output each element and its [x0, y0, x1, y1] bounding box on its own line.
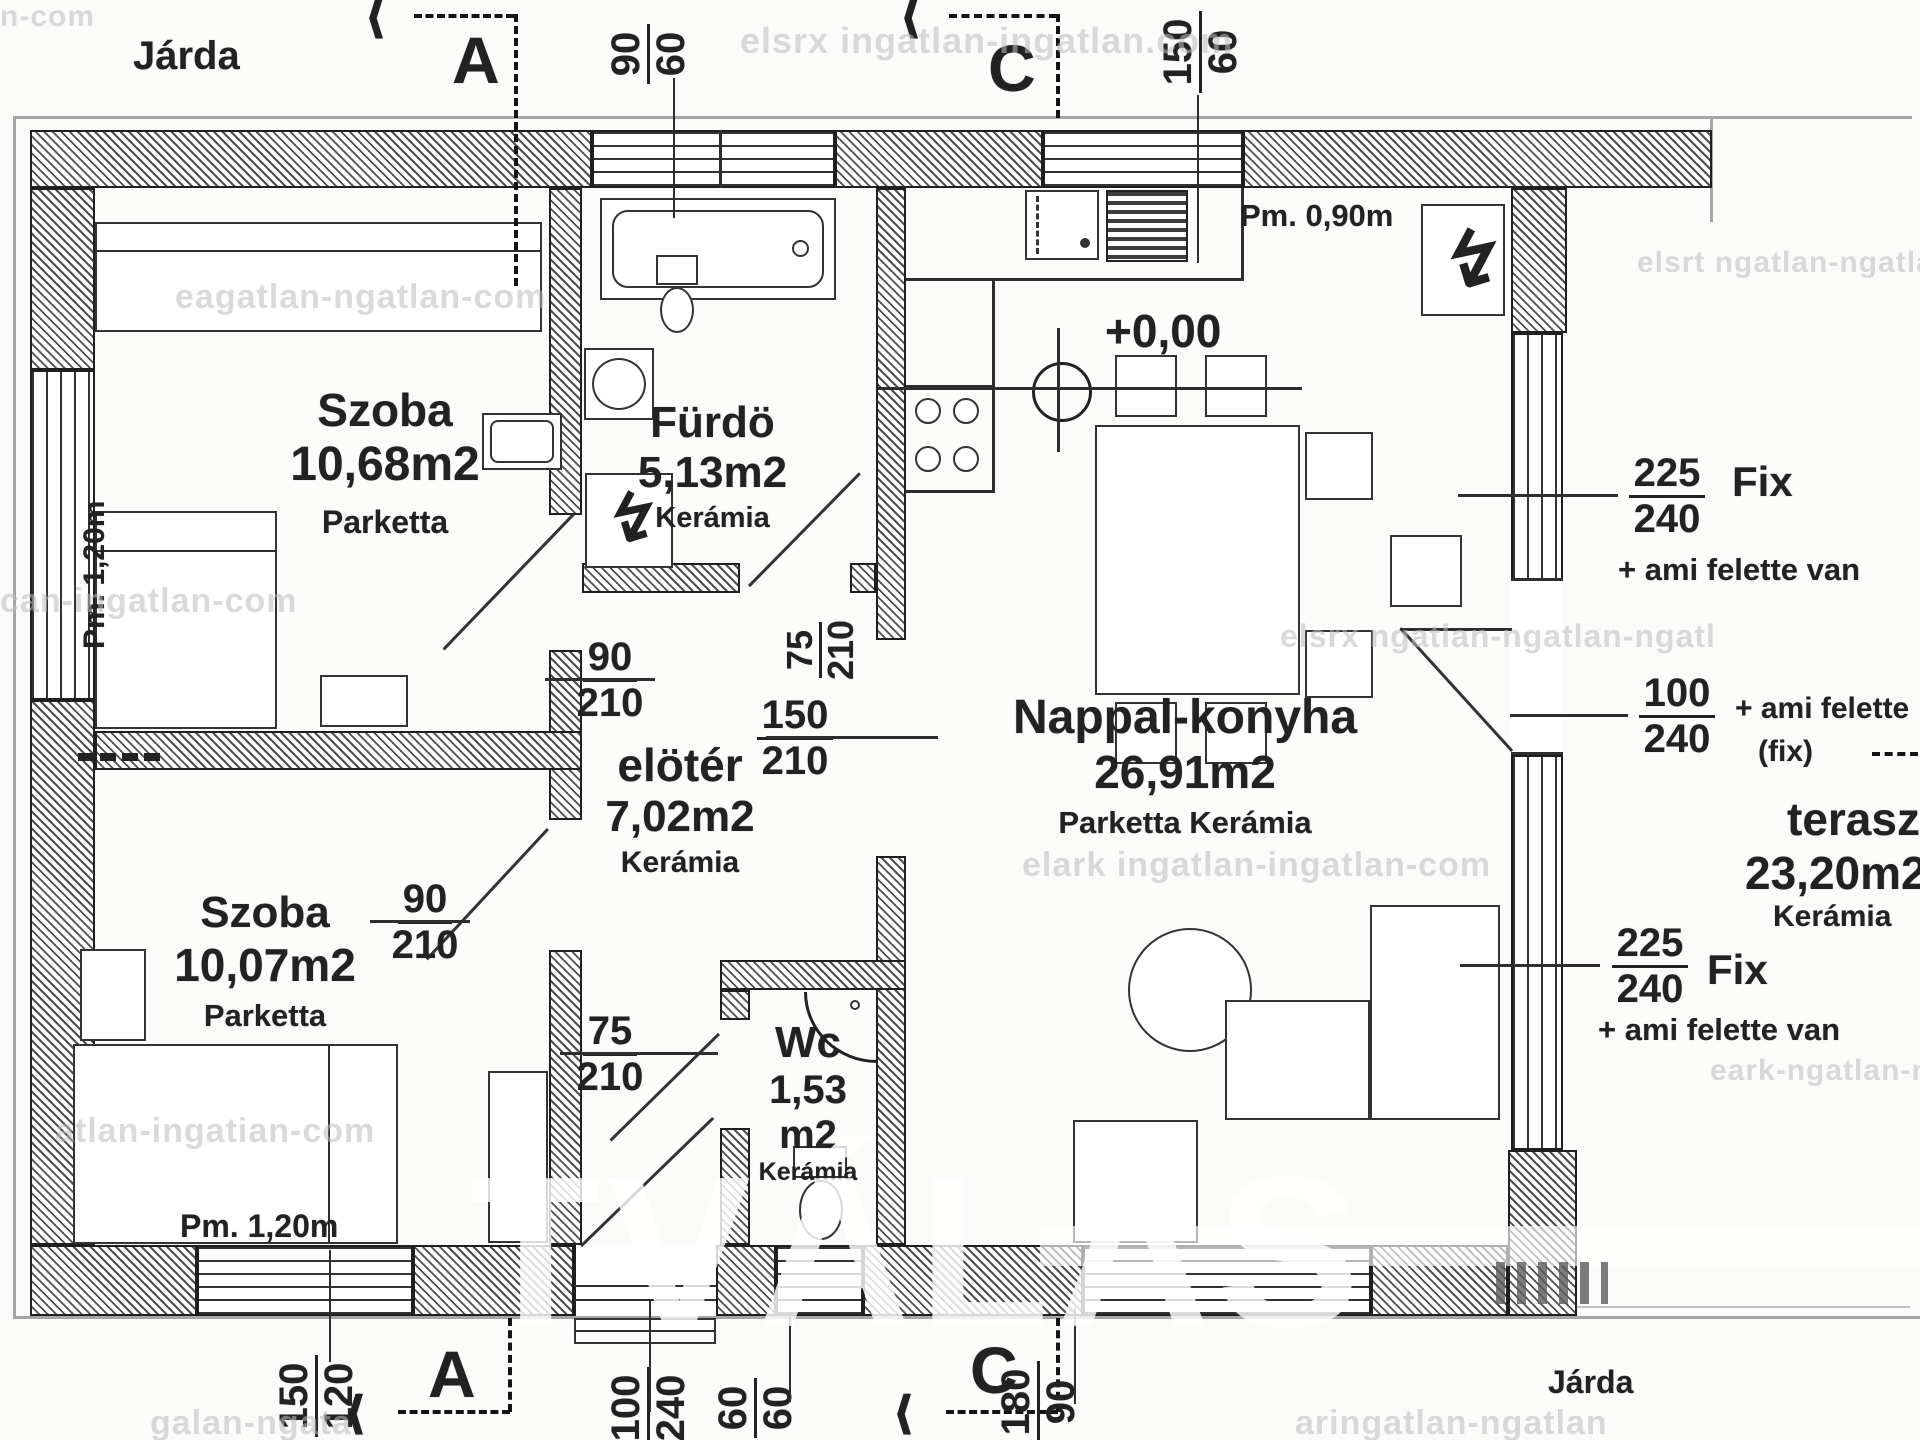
cooktop-burner — [953, 398, 979, 424]
parapet-label-bottom: Pm. 1,20m — [180, 1208, 338, 1245]
dimension-leader — [1510, 714, 1628, 717]
dimension-leader — [1458, 494, 1618, 497]
level-marker-icon — [1032, 362, 1092, 422]
chair — [1390, 535, 1462, 607]
wardrobe-line — [95, 250, 542, 252]
section-line-a-top — [514, 14, 518, 286]
dimension-leader — [545, 678, 655, 681]
parapet-label-kitchen: Pm. 0,90m — [1240, 198, 1393, 234]
dimension-leader — [370, 920, 470, 923]
dimension-leader — [1460, 964, 1600, 967]
wall-top-left — [30, 130, 592, 188]
watermark: elsrx ngatlan-ngatlan-ngatl — [1280, 618, 1716, 655]
terrace-fix-glazing-upper — [1511, 333, 1563, 580]
watermark: elark ingatlan-ingatlan-com — [1022, 846, 1491, 885]
cooktop-burner — [915, 446, 941, 472]
fix-note: Fix — [1707, 946, 1768, 994]
sofa-section — [1225, 1000, 1370, 1120]
watermark: elsrx ingatlan-ingatlan.com — [740, 20, 1233, 62]
room-label-bath: Fürdö 5,13m2 Kerámia — [600, 398, 825, 535]
level-marker-axis-h — [878, 387, 1302, 390]
corner-basin-dot — [850, 1000, 860, 1010]
window-mullion — [719, 130, 722, 188]
watermark: can-ingatlan-com — [0, 582, 297, 621]
cooktop-burner — [953, 446, 979, 472]
logo-watermark-band — [1040, 1226, 1920, 1266]
watermark: galan-ngata — [150, 1404, 352, 1440]
dimension-leader — [1197, 95, 1199, 263]
bed-pillow-line — [95, 550, 277, 552]
dimension-leader — [329, 1250, 331, 1362]
dim-terrace-fix-upper: 225240 — [1612, 452, 1722, 541]
bathtub-drain — [792, 240, 809, 257]
fix-note2: (fix) — [1758, 735, 1813, 769]
chair — [1205, 355, 1267, 417]
nightstand — [80, 949, 146, 1041]
kitchen-sink-faucet — [1036, 196, 1039, 254]
wall-wc-top — [720, 960, 906, 990]
watermark: atlan-ingatian-com — [55, 1112, 375, 1151]
wall-top-middle — [835, 130, 1043, 188]
wall-left-upper — [30, 188, 95, 370]
cooktop-burner — [915, 398, 941, 424]
counter-front-edge — [906, 278, 1243, 281]
level-value: +0,00 — [1105, 304, 1221, 358]
window-kitchen-top — [1043, 130, 1243, 188]
kitchen-sink-drain — [1080, 238, 1090, 248]
room-label-terrace: terasz 23,20m2 Kerámia — [1745, 792, 1920, 934]
toilet-cistern — [656, 255, 698, 285]
plot-boundary-top — [13, 116, 1912, 119]
dimension-leader — [766, 736, 938, 739]
section-marker-a-bottom: A — [428, 1336, 476, 1412]
wall-top-right — [1243, 130, 1712, 188]
parapet-label-left: Pm. 1,20m — [78, 479, 112, 649]
dim-terrace-door: 100240 — [1622, 672, 1732, 761]
wall-wc-left-1 — [720, 990, 750, 1020]
dish-drainer — [1106, 190, 1188, 262]
room-label-bedroom1: Szoba 10,68m2 Parketta — [240, 383, 530, 541]
room-label-hall: elötér 7,02m2 Kerámia — [580, 738, 780, 880]
section-line-a-bottom — [398, 1410, 510, 1414]
dim-window-bath: 9060 — [604, 6, 692, 102]
plot-boundary-left — [13, 116, 16, 1319]
section-line-c-top — [949, 14, 1057, 18]
dash-mark — [1872, 752, 1918, 756]
sidewalk-label-top: Járda — [133, 34, 240, 79]
logo-watermark-ticks — [1496, 1262, 1608, 1304]
terrace-fix-glazing-lower — [1511, 755, 1563, 1150]
wall-bedrooms-divider — [95, 731, 582, 770]
watermark: eagatlan-ngatlan-com — [175, 278, 546, 317]
fix-note: + ami felette — [1735, 692, 1909, 726]
section-marker-a-top: A — [452, 22, 500, 98]
window-bedroom2-bottom — [197, 1245, 413, 1316]
section-line-a-top — [414, 14, 514, 18]
chair — [1115, 355, 1177, 417]
room-label-living: Nappal-konyha 26,91m2 Parketta Kerámia — [985, 690, 1385, 841]
sofa-section — [1370, 905, 1500, 1120]
section-arrow-icon: ⟨⟨⟨ — [894, 1388, 898, 1439]
toilet-bowl — [660, 287, 694, 333]
watermark: eark-ngatlan-ngatlan — [1710, 1054, 1920, 1088]
fix-note: Fix — [1732, 458, 1793, 506]
fix-note2: + ami felette van — [1598, 1012, 1840, 1048]
dimension-leader — [560, 1052, 718, 1055]
dim-door-bath: 75210 — [776, 602, 864, 698]
dim-entrance-door: 100240 — [604, 1360, 692, 1440]
chair — [1305, 432, 1373, 500]
floor-plan: ↯ ↯ +0,00 ⟨⟨⟨ A ⟨⟨⟨ C A ⟨⟨⟨ C — [0, 0, 1920, 1440]
terrace-door-opening — [1511, 580, 1563, 755]
watermark: aringatlan-ngatlan — [1295, 1404, 1608, 1440]
section-arrow-icon: ⟨⟨⟨ — [366, 0, 370, 43]
fix-note2: + ami felette van — [1618, 552, 1860, 588]
watermark: elsrt ngatlan-ngatlan-ngat — [1637, 246, 1920, 280]
wall-bath-hall-2 — [850, 563, 876, 593]
window-bath-top — [592, 130, 835, 188]
dim-window-wc: 6060 — [711, 1360, 799, 1440]
bedroom2-high-window — [78, 753, 160, 761]
nightstand — [320, 675, 408, 727]
dim-window-living: 18090 — [994, 1354, 1082, 1440]
level-marker-axis-v — [1057, 328, 1060, 452]
dim-terrace-fix-lower: 225240 — [1595, 922, 1705, 1011]
room-label-bedroom2: Szoba 10,07m2 Parketta — [155, 888, 375, 1034]
watermark: n-com — [0, 0, 95, 34]
sidewalk-label-bottom: Járda — [1548, 1364, 1633, 1401]
dining-table — [1095, 425, 1300, 695]
wall-v2-upper — [876, 188, 906, 640]
wall-terrace-corner-leg — [1511, 188, 1567, 333]
dimension-leader — [673, 78, 675, 218]
wall-bottom-1 — [30, 1245, 197, 1316]
cooktop-bottom-edge — [906, 490, 994, 493]
terrace-door-jamb — [1511, 578, 1563, 581]
